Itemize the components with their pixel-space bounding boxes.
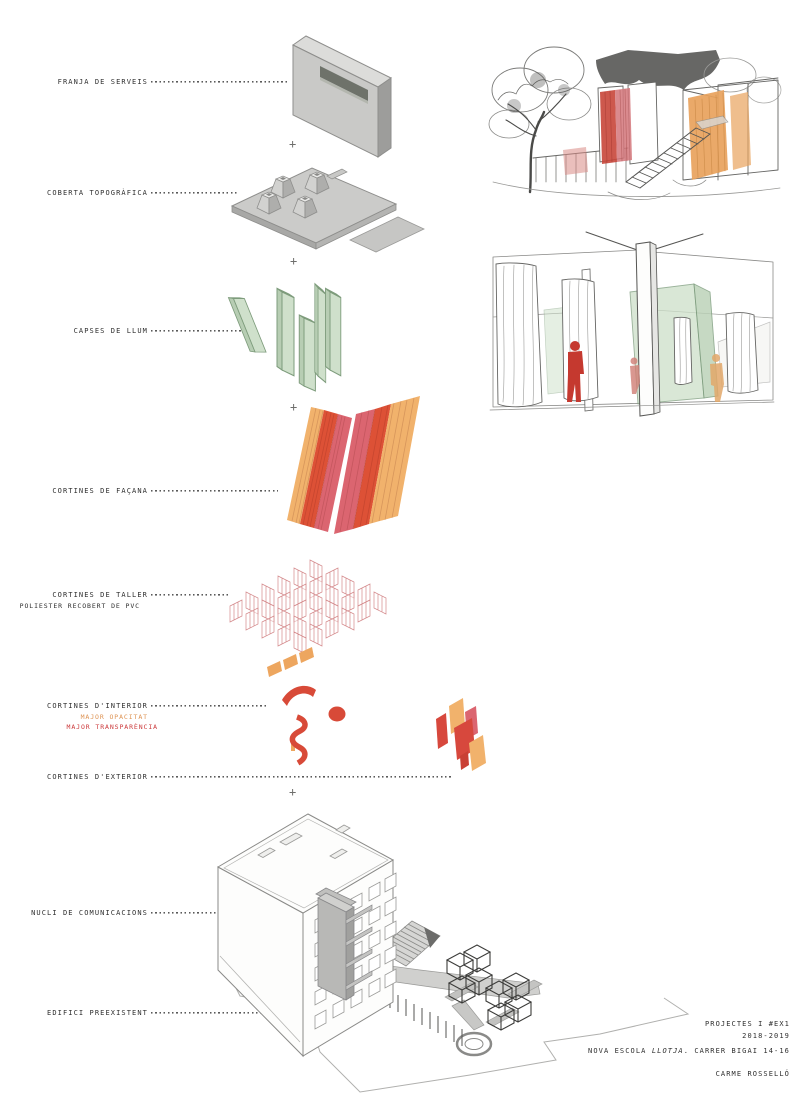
edifici-preexistent-drawing — [218, 814, 396, 1056]
ramp — [452, 1000, 484, 1030]
school-name-italic: LLOTJA — [652, 1047, 684, 1055]
coberta-topografica-drawing — [232, 168, 424, 252]
interior-perspective-sketch — [478, 222, 786, 427]
cortines-interior-drawing — [267, 647, 346, 763]
exterior-perspective-sketch — [478, 30, 793, 202]
academic-year: 2018-2019 — [588, 1030, 790, 1042]
project-title: NOVA ESCOLA LLOTJA. CARRER BIGAI 14-16 — [588, 1045, 790, 1057]
presentation-board: FRANJA DE SERVEIS COBERTA TOPOGRÀFICA CA… — [0, 0, 800, 1107]
credits-block: PROJECTES I #EX1 2018-2019 NOVA ESCOLA L… — [588, 1018, 790, 1080]
course-title: PROJECTES I #EX1 — [588, 1018, 790, 1030]
red-curtain — [600, 90, 617, 164]
cortines-de-taller-drawing — [230, 560, 386, 654]
author-name: CARME ROSSELLÓ — [588, 1068, 790, 1080]
cortines-de-facana-drawing — [287, 396, 420, 534]
cortines-exterior-drawing — [436, 698, 486, 771]
franja-de-serveis-drawing — [293, 36, 391, 157]
capses-de-llum-drawing — [228, 284, 340, 391]
